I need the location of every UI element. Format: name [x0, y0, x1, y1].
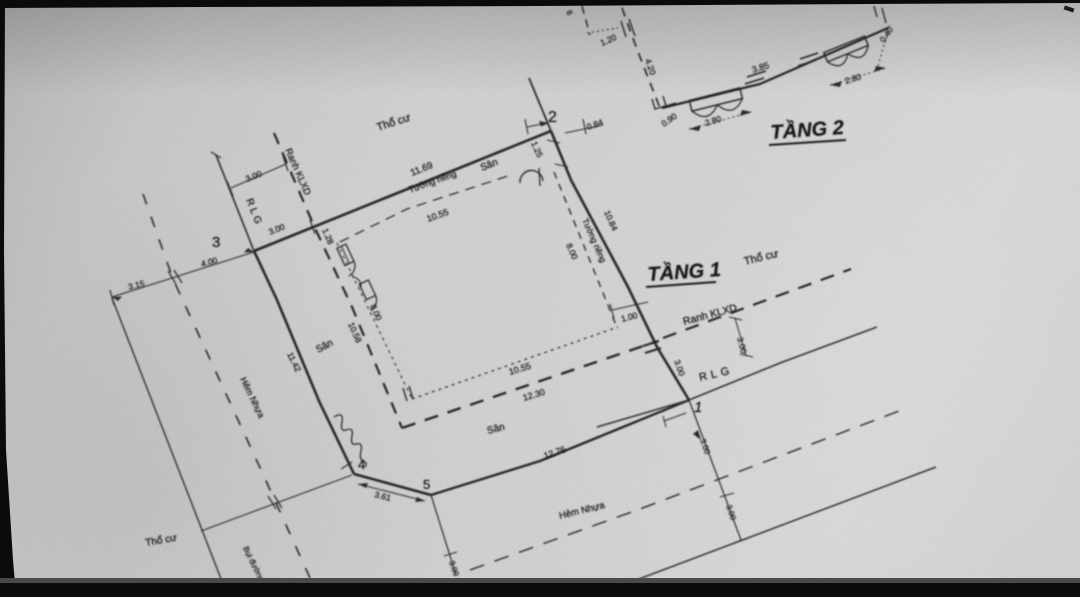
svg-text:2: 2: [548, 109, 557, 126]
svg-text:1: 1: [694, 399, 702, 416]
svg-text:5: 5: [423, 477, 430, 492]
svg-text:4: 4: [358, 457, 365, 472]
svg-text:3: 3: [212, 234, 220, 251]
